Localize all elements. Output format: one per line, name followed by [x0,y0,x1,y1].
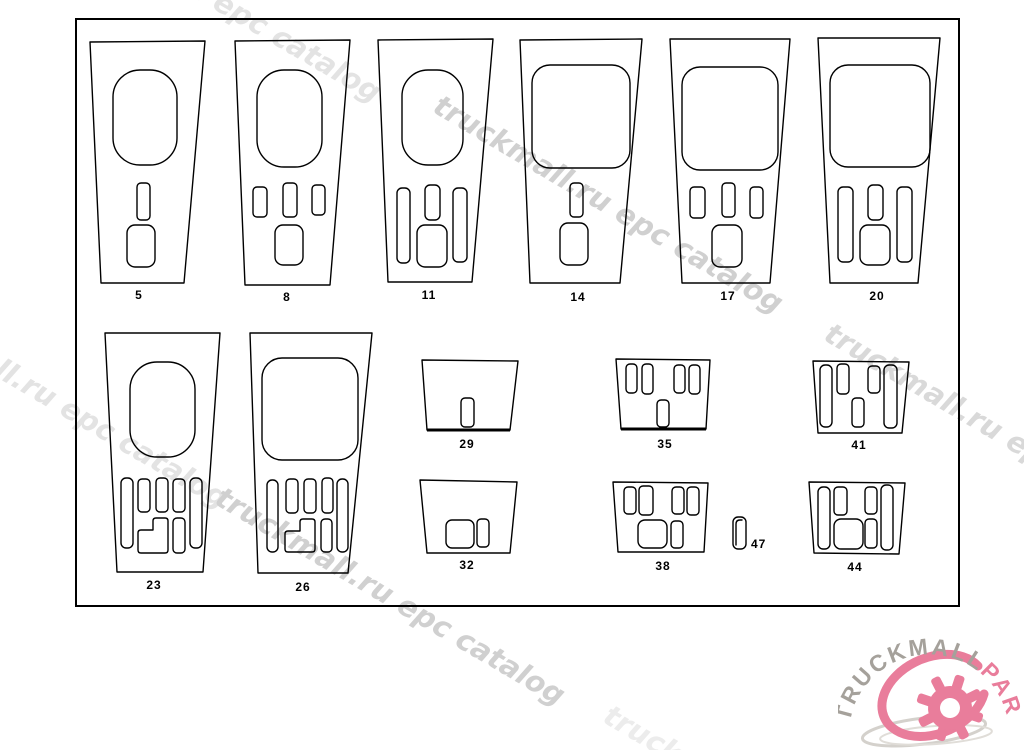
part-number-44: 44 [847,560,862,574]
part-number-17: 17 [720,289,735,303]
part-shape-41 [811,359,911,436]
panel-cutouts [262,358,358,552]
part-shape-17 [668,36,792,285]
part-number-5: 5 [135,288,143,302]
catalog-diagram-page: truckmall.ru epc catalog truckmall.ru ep… [0,0,1024,750]
panel-outline [235,40,350,285]
part-shape-14 [518,37,644,285]
part-number-47: 47 [751,537,766,551]
part-number-35: 35 [657,437,672,451]
part-shape-8 [233,38,352,287]
panel-cutouts [446,519,489,548]
panel-cutouts [830,65,930,265]
part-shape-38 [611,480,710,556]
panel-outline [670,39,790,283]
panel-cutouts [532,65,630,265]
panel-outline [378,39,493,282]
part-number-41: 41 [851,438,866,452]
panel-outline [105,333,220,572]
part-number-8: 8 [283,290,291,304]
panel-outline [420,480,517,553]
panel-outline [422,360,518,430]
panel-cutouts [820,364,897,428]
part-shape-35 [614,357,712,433]
panel-outline [813,361,909,433]
stepped-cutout [285,519,315,552]
part-shape-47 [731,514,753,554]
part-number-23: 23 [146,578,161,592]
part-shape-5 [88,38,207,285]
panel-cutouts [626,364,700,427]
panel-cutouts [253,70,325,265]
part-shape-26 [248,331,374,576]
part-number-26: 26 [295,580,310,594]
part-number-20: 20 [869,289,884,303]
part-number-38: 38 [655,559,670,573]
inner-line [736,520,742,545]
panel-cutouts [682,67,778,267]
panel-cutouts [113,70,177,267]
part-shape-23 [103,331,224,575]
part-number-14: 14 [570,290,585,304]
part-shape-44 [807,480,907,557]
panel-outline [90,41,205,283]
panel-cutouts [121,362,202,553]
part-shape-32 [418,478,519,556]
panel-cutouts [397,70,467,267]
panel-outline [520,39,642,283]
panel-outline [733,517,746,549]
panel-outline [818,38,940,283]
panel-outline [809,482,905,554]
part-number-32: 32 [459,558,474,572]
panel-cutouts [818,485,893,550]
part-number-29: 29 [459,437,474,451]
panel-cutouts [461,398,474,427]
part-shape-29 [420,358,520,434]
panel-cutouts [624,486,699,548]
part-number-11: 11 [422,288,437,302]
part-shape-20 [816,35,942,285]
stepped-cutout [138,518,168,553]
panel-outline [613,482,708,552]
truckmallparts-logo: TRUCKMALLPARTS [838,638,1024,750]
part-shape-11 [376,37,495,284]
